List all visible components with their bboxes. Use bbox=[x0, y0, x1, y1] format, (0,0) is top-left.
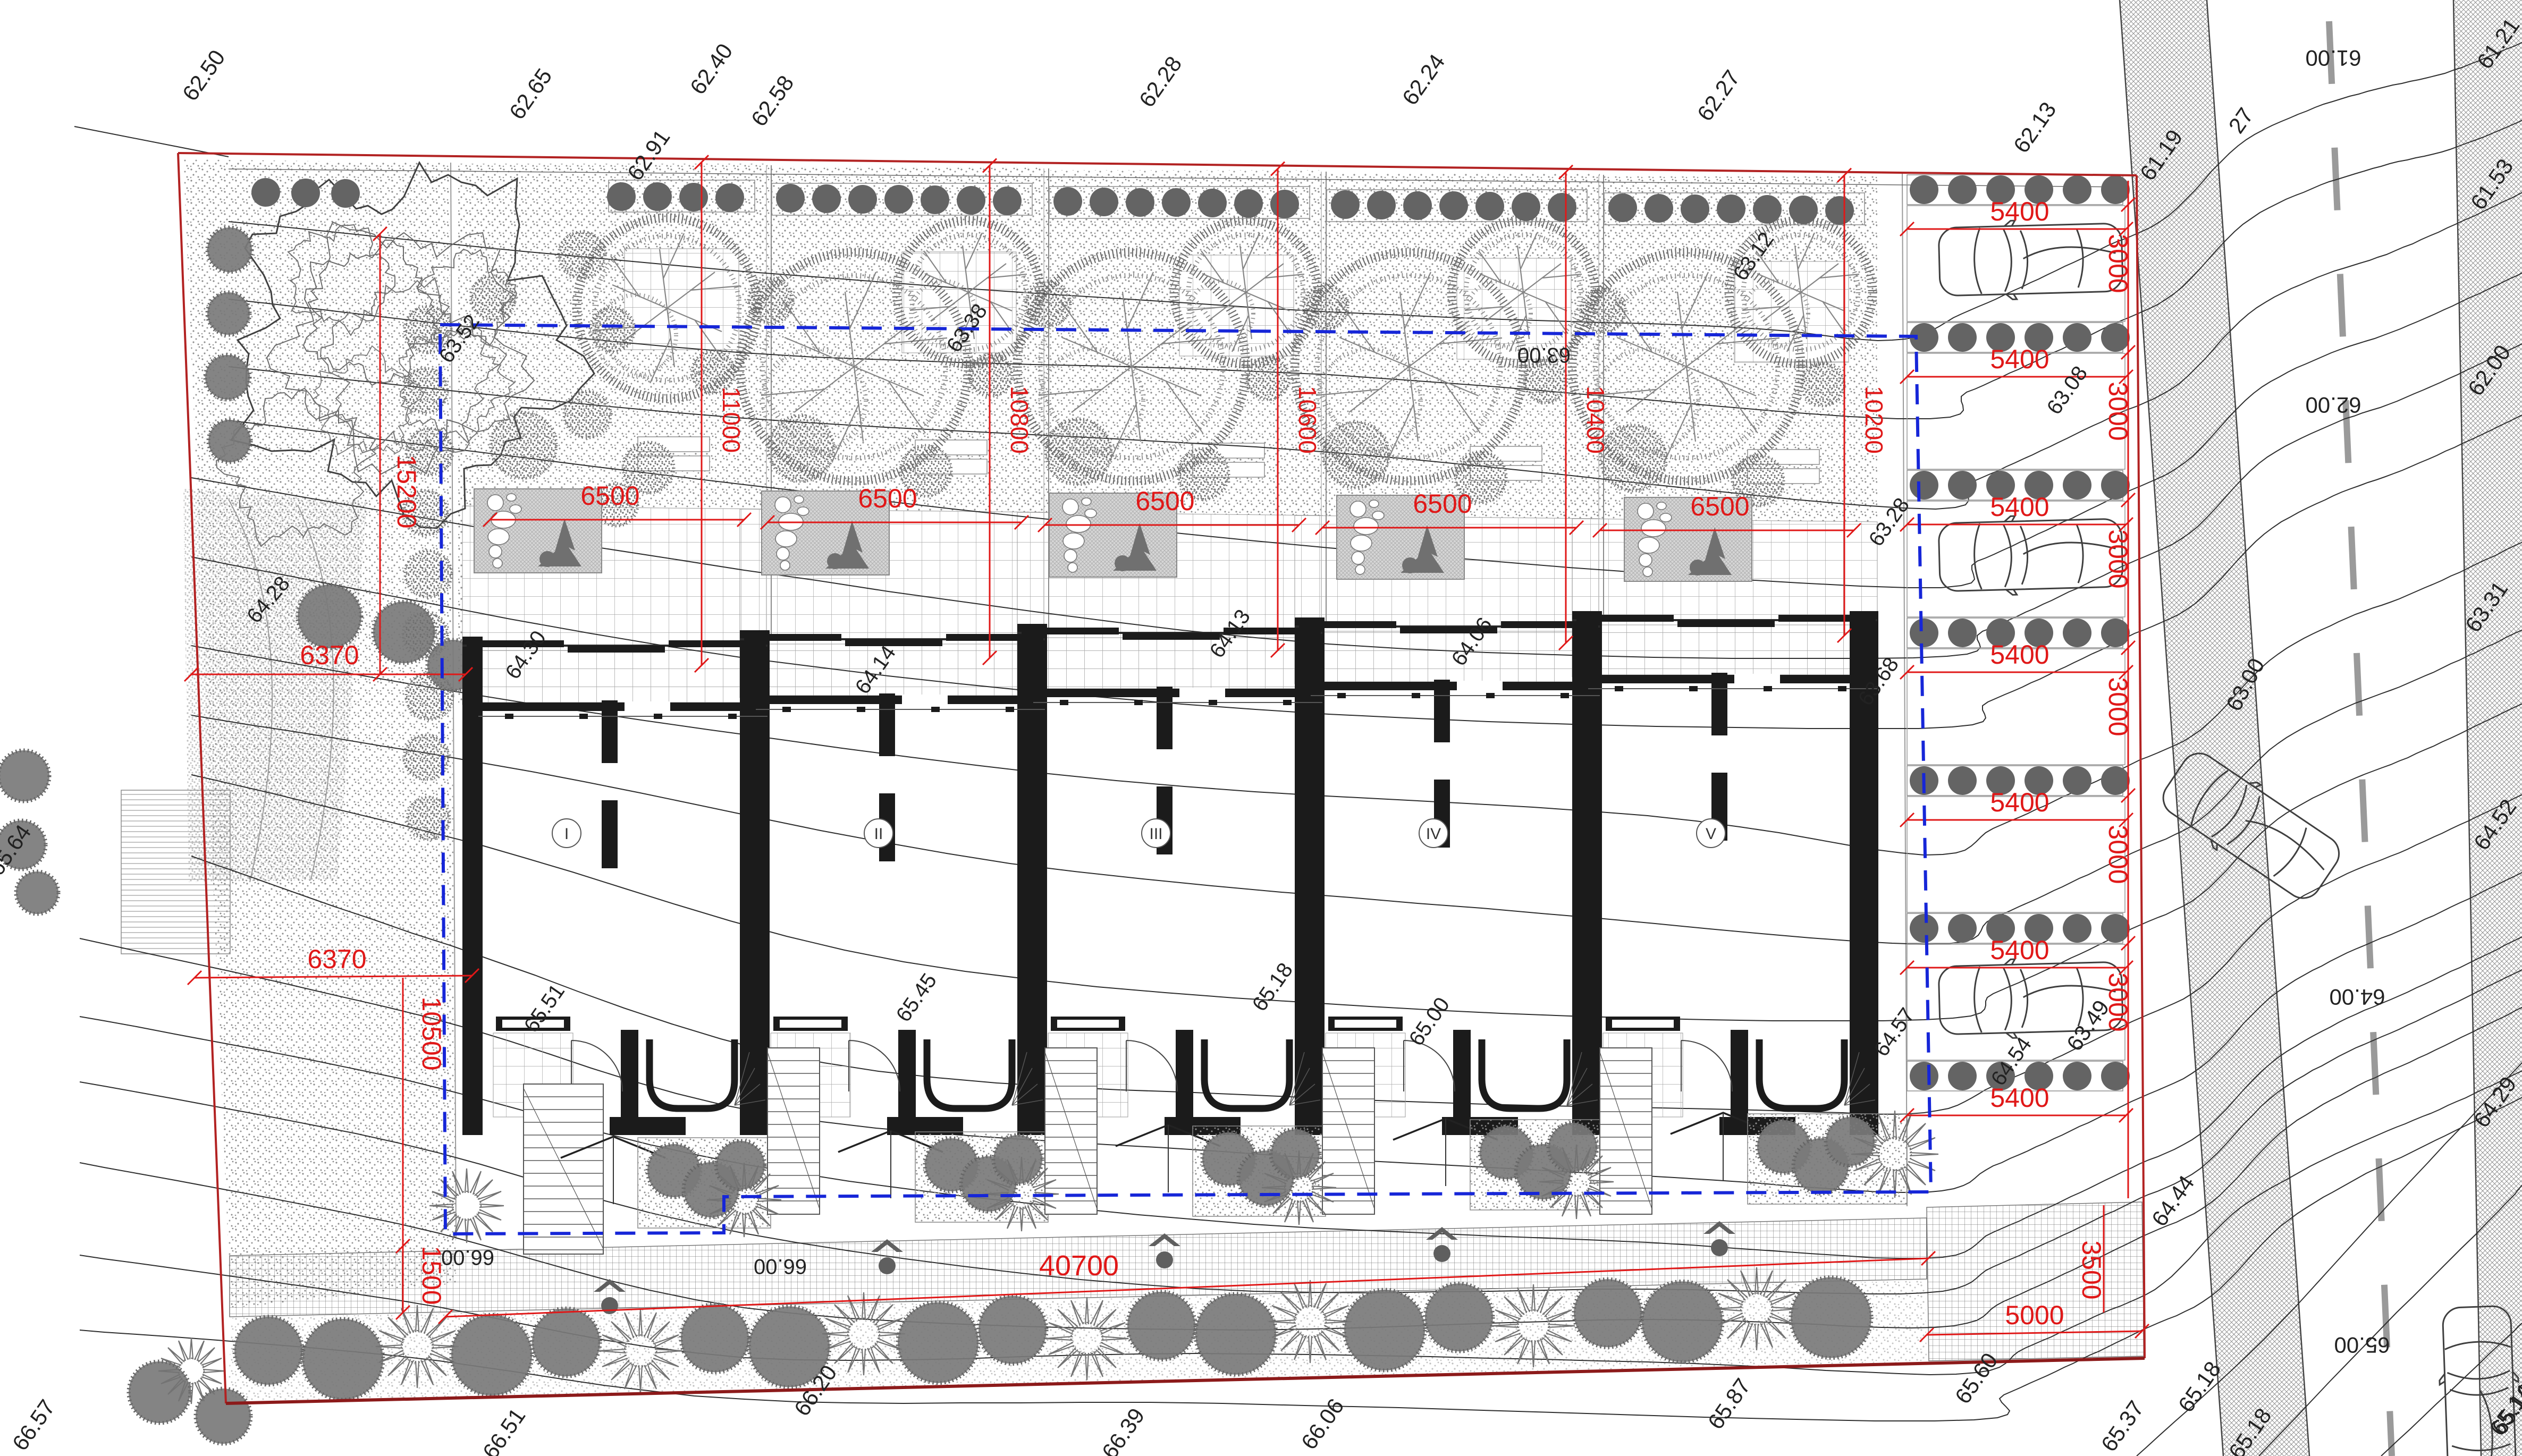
svg-text:10600: 10600 bbox=[1294, 386, 1321, 454]
svg-text:5000: 5000 bbox=[2005, 1300, 2064, 1330]
svg-text:40700: 40700 bbox=[1039, 1250, 1119, 1282]
svg-text:6500: 6500 bbox=[858, 484, 917, 513]
svg-text:3000: 3000 bbox=[2103, 382, 2133, 441]
svg-text:3500: 3500 bbox=[2077, 1240, 2106, 1299]
svg-text:6500: 6500 bbox=[1690, 492, 1749, 521]
svg-text:63.00: 63.00 bbox=[1517, 343, 1571, 367]
svg-text:3000: 3000 bbox=[2103, 825, 2133, 884]
svg-text:6370: 6370 bbox=[300, 640, 359, 670]
svg-text:10400: 10400 bbox=[1582, 386, 1609, 454]
svg-text:5400: 5400 bbox=[1990, 788, 2049, 817]
svg-text:3000: 3000 bbox=[2103, 677, 2133, 736]
svg-text:66.00: 66.00 bbox=[441, 1246, 494, 1269]
svg-text:62.00: 62.00 bbox=[2305, 393, 2361, 418]
svg-text:5400: 5400 bbox=[1990, 935, 2049, 965]
svg-text:11000: 11000 bbox=[718, 387, 745, 453]
svg-text:5400: 5400 bbox=[1990, 344, 2049, 374]
svg-text:15200: 15200 bbox=[392, 454, 421, 528]
svg-text:V: V bbox=[1706, 825, 1716, 843]
svg-text:3000: 3000 bbox=[2103, 972, 2133, 1031]
svg-text:10800: 10800 bbox=[1006, 386, 1033, 454]
svg-text:5400: 5400 bbox=[1990, 1083, 2049, 1113]
svg-text:10200: 10200 bbox=[1860, 386, 1888, 454]
svg-text:5400: 5400 bbox=[1990, 640, 2049, 670]
svg-text:61.00: 61.00 bbox=[2305, 46, 2361, 71]
svg-text:65.00: 65.00 bbox=[2334, 1333, 2390, 1358]
svg-text:3000: 3000 bbox=[2103, 234, 2133, 293]
svg-text:I: I bbox=[564, 825, 569, 843]
svg-text:6500: 6500 bbox=[580, 481, 639, 511]
svg-text:66.00: 66.00 bbox=[754, 1255, 807, 1278]
svg-text:5400: 5400 bbox=[1990, 197, 2049, 226]
svg-text:3000: 3000 bbox=[2103, 529, 2133, 588]
svg-text:6500: 6500 bbox=[1413, 489, 1472, 519]
svg-text:IV: IV bbox=[1426, 825, 1441, 843]
svg-text:III: III bbox=[1149, 825, 1162, 843]
svg-text:64.00: 64.00 bbox=[2329, 985, 2385, 1010]
svg-text:6500: 6500 bbox=[1135, 486, 1194, 516]
svg-text:5400: 5400 bbox=[1990, 492, 2049, 522]
svg-text:10500: 10500 bbox=[417, 996, 446, 1070]
svg-text:II: II bbox=[874, 825, 883, 843]
svg-text:6370: 6370 bbox=[307, 944, 366, 974]
